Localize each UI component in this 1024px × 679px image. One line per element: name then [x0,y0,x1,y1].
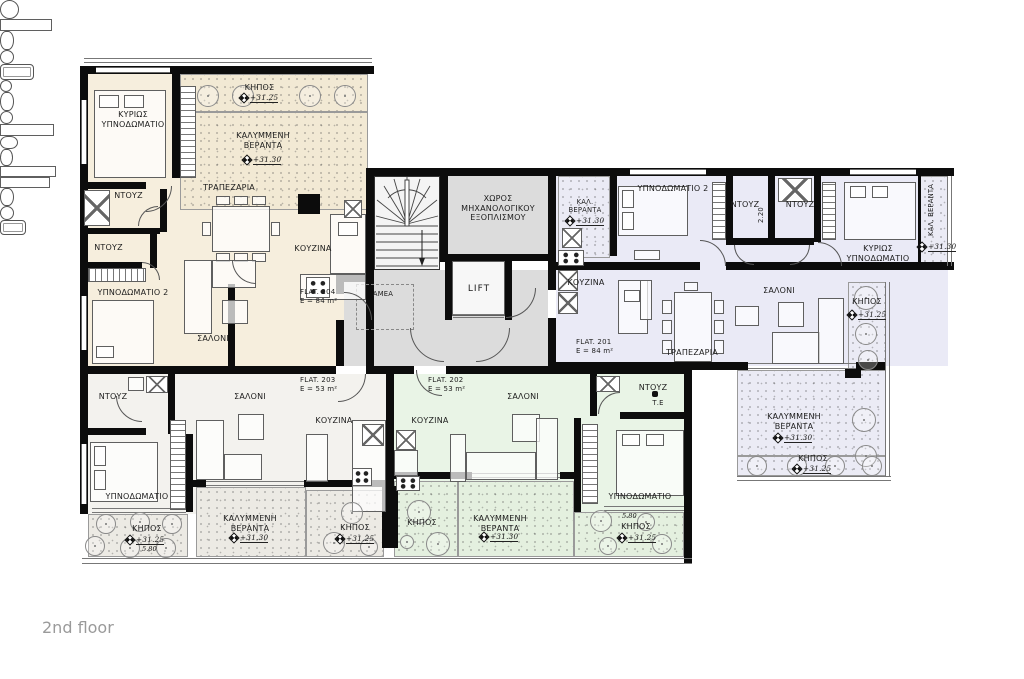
level-marker: +31.25 [240,93,278,103]
wall [448,168,556,176]
room-label-garden: ΚΗΠΟΣ [232,83,287,93]
sink [0,136,18,149]
sofa [224,454,262,480]
plant-circle [85,536,105,556]
bathtub [0,220,26,235]
toilet [0,188,14,206]
toilet [0,31,14,50]
level-marker: +31.30 [480,532,518,542]
wall [684,374,692,564]
level-marker-icon [238,92,249,103]
accessible-symbol-icon [0,0,19,19]
wall [574,418,581,512]
flat-id: FLAT. 204 [300,288,360,296]
room-label-shower: ΝΤΟΥΖ [86,243,131,253]
shaft [344,200,362,218]
wall [228,284,235,366]
level-marker-icon [241,154,252,165]
closet [88,268,146,282]
room-label-bedroom2: ΥΠΝΟΔΩΜΑΤΙΟ 2 [86,288,180,298]
stove [396,476,420,491]
wall [610,176,617,256]
flat-id: FLAT. 203 [300,376,360,384]
sofa [772,332,820,364]
wall [150,234,157,268]
level-marker: +31.25 [848,310,886,320]
wall [726,238,814,245]
wall [366,168,374,374]
shaft [562,228,582,248]
kitchen-unit [558,292,578,314]
room-label-living: ΣΑΛΟΝΙ [225,392,275,402]
level-marker: +31.30 [230,533,268,543]
wall [188,480,206,487]
stairs [374,176,440,270]
bathtub [0,64,34,80]
wall [298,194,320,214]
closet [582,424,598,504]
plant-circle [852,408,876,432]
plant-circle [855,323,877,345]
armchair [238,414,264,440]
plant-circle [747,456,767,476]
pillow [124,95,144,108]
level-value: +31.25 [346,534,374,544]
chair [662,300,672,314]
room-label-veranda: ΚΑΛΥΜΜΕΝΗ ΒΕΡΑΝΤΑ [466,514,534,533]
kitchen-island [306,434,328,482]
room-label-living: ΣΑΛΟΝΙ [754,286,804,296]
flat-area: E = 53 m² [300,385,360,393]
stove [352,468,372,486]
level-marker: +31.25 [126,535,164,545]
window [81,444,87,504]
desk [634,250,660,260]
room-label-kitchen: ΚΟΥΖΙΝΑ [308,416,360,426]
room-label-dining: ΤΡΑΠΕΖΑΡΙΑ [654,348,730,358]
dining-table [212,206,270,252]
wall [845,368,861,378]
chair [216,196,230,205]
tv-bench [0,177,50,188]
wall [186,434,193,512]
room-label-shower: ΝΤΟΥΖ [632,383,674,393]
level-marker: +31.25 [793,464,831,474]
plant-circle [299,85,321,107]
wall [440,254,556,261]
level-marker-icon [846,309,857,320]
level-value: +31.25 [858,310,886,320]
level-value: +31.30 [240,533,268,543]
chair [271,222,280,236]
dimension-label: 5.80 [622,512,637,520]
sofa [818,298,844,364]
level-marker-icon [916,241,927,252]
window [96,67,170,73]
wall [80,228,160,234]
room-label-master-bedroom: ΚΥΡΙΩΣ ΥΠΝΟΔΩΜΑΤΙΟ [93,110,173,129]
closet [822,182,836,240]
level-value: +31.25 [250,93,278,103]
railing [82,558,692,564]
chair [202,222,211,236]
tv-bench [0,166,56,177]
railing [947,176,952,266]
room-label-kitchen: ΚΟΥΖΙΝΑ [288,244,338,254]
level-marker-icon [228,532,239,543]
pillow [99,95,119,108]
sofa [466,452,536,480]
wall [80,428,146,435]
washing-machine [128,377,144,391]
shower [596,376,620,392]
sofa [536,418,558,480]
room-label-balcony: ΚΑΛ. ΒΕΡΑΝΤΑ [562,198,608,214]
chair [714,300,724,314]
room-label-veranda: ΚΑΛΥΜΜΕΝΗ ΒΕΡΑΝΤΑ [214,514,286,533]
dimension-label: 5.80 [142,545,157,553]
room-label-master-bedroom: ΚΥΡΙΩΣ ΥΠΝΟΔΩΜΑΤΙΟ [838,244,918,263]
shower [146,376,168,393]
window [630,169,706,175]
level-marker: +31.30 [774,433,812,443]
flat-area: E = 53 m² [428,385,488,393]
level-marker-icon [334,533,345,544]
toilet [0,149,13,166]
level-value: +31.30 [784,433,812,443]
room-label-living: ΣΑΛΟΝΙ [188,334,238,344]
tv-bench [0,19,52,31]
level-marker: +31.30 [243,155,281,165]
pillow [872,186,888,198]
tv-bench [0,124,54,136]
room-label-garden: ΚΗΠΟΣ [790,454,836,464]
level-marker-icon [478,531,489,542]
plant-circle [96,514,116,534]
room-label-lift: LIFT [459,284,499,295]
wall [445,260,452,320]
wall [560,472,580,479]
armchair [735,306,759,326]
sliding-door [206,481,304,486]
sofa [196,420,224,480]
level-marker: +31.30 [918,242,956,252]
kitchen-counter [640,280,652,320]
room-label-shower: ΝΤΟΥΖ [782,200,818,210]
room-label-veranda: ΚΑΛΥΜΜΕΝΗ ΒΕΡΑΝΤΑ [758,412,830,431]
kitchen-island [450,434,466,482]
level-value: +31.25 [803,464,831,474]
wall [80,182,146,189]
room-label-veranda: ΚΑΛΥΜΜΕΝΗ ΒΕΡΑΝΤΑ [225,131,301,150]
room-label-garden: ΚΗΠΟΣ [845,297,889,307]
level-marker: +31.30 [566,216,604,226]
room-label-garden: ΚΗΠΟΣ [122,524,172,534]
pillow [94,470,106,490]
room-label-bedroom: ΥΠΝΟΔΩΜΑΤΙΟ [600,492,680,502]
flat-area: E = 84 m² [300,297,360,305]
level-marker-icon [616,532,627,543]
wall [548,318,556,366]
stairs-drawing [374,176,440,270]
flat-id: FLAT. 202 [428,376,488,384]
fridge [362,424,384,446]
chair [684,282,698,291]
dimension-label: 2.20 [757,203,765,227]
railing [737,476,891,481]
room-label-bedroom2: ΥΠΝΟΔΩΜΑΤΙΟ 2 [626,184,720,194]
room-label-bedroom: ΥΠΝΟΔΩΜΑΤΙΟ [98,492,176,502]
room-label-garden: ΚΗΠΟΣ [398,518,446,528]
sink [338,222,358,236]
window [81,100,87,164]
wall [700,362,748,370]
kitchen-counter [394,450,418,476]
plant-circle [400,535,414,549]
plant-circle [599,537,617,555]
plant-circle [334,85,356,107]
sink [0,80,12,92]
wall [172,74,180,178]
lift-door [453,314,504,318]
plant-circle [197,85,219,107]
flat-area: E = 84 m² [576,347,636,355]
pillow [622,212,634,230]
closet [180,86,196,178]
plant-circle [862,456,882,476]
room-label-shower: ΝΤΟΥΖ [106,191,151,201]
wall [548,280,556,290]
pillow [94,446,106,466]
floor-title: 2nd floor [42,618,114,637]
room-label-te: Τ.Ε [648,399,668,407]
armchair [222,300,248,324]
wall [440,168,448,262]
level-value: +31.30 [928,242,956,252]
pillow [622,434,640,446]
window [81,296,87,350]
wall [768,176,775,238]
room-label-mech: ΧΩΡΟΣ ΜΗΧΑΝΟΛΟΓΙΚΟΥ ΕΞΟΠΛΙΣΜΟΥ [450,194,546,223]
plant-circle [341,502,363,524]
room-label-kitchen: ΚΟΥΖΙΝΑ [404,416,456,426]
window [604,506,684,511]
level-value: +31.30 [576,216,604,226]
chair [662,320,672,334]
room-label-amea: ΑΜΕΑ [364,290,402,298]
level-marker: +31.25 [618,533,656,543]
wall [374,168,448,176]
room-label-balcony: ΚΑΛ. ΒΕΡΑΝΤΑ [927,180,935,240]
room-label-kitchen: ΚΟΥΖΙΝΑ [560,278,612,288]
kitchen-unit [396,430,416,450]
wall [336,320,344,366]
level-marker-icon [791,463,802,474]
level-value: +31.25 [136,535,164,545]
plant-circle [426,532,450,556]
plant-circle [590,510,612,532]
armchair [778,302,804,327]
chair [714,320,724,334]
floor-plan: ΚΥΡΙΩΣ ΥΠΝΟΔΩΜΑΤΙΟ ΚΗΠΟΣ +31.25 ΚΑΛΥΜΜΕΝ… [0,0,1024,679]
wall [80,366,336,374]
plant-circle [858,350,878,370]
room-label-garden: ΚΗΠΟΣ [612,522,660,532]
room-label-dining: ΤΡΑΠΕΖΑΡΙΑ [194,183,264,193]
pillow [96,346,114,358]
level-value: +31.30 [253,155,281,165]
level-value: +31.25 [628,533,656,543]
pillow [646,434,664,446]
sink [0,206,14,220]
wall [386,374,394,488]
level-marker-icon [124,534,135,545]
flat-id: FLAT. 201 [576,338,636,346]
level-marker-icon [564,215,575,226]
level-value: +31.30 [490,532,518,542]
sink [0,50,14,64]
room-label-living: ΣΑΛΟΝΙ [498,392,548,402]
wall [556,362,700,370]
wall [548,168,556,280]
pillow [850,186,866,198]
level-marker-icon [772,432,783,443]
window [850,169,916,175]
wall [620,412,690,419]
sofa [184,260,212,334]
level-marker: +31.25 [336,534,374,544]
wall [368,366,414,374]
sink [0,111,13,124]
room-label-shower: ΝΤΟΥΖ [92,392,134,402]
stove [558,250,584,266]
room-label-garden: ΚΗΠΟΣ [332,523,378,533]
toilet [0,92,14,111]
chair [234,196,248,205]
shower [778,178,812,202]
sink [624,290,640,302]
railing [84,58,372,63]
chair [252,196,266,205]
